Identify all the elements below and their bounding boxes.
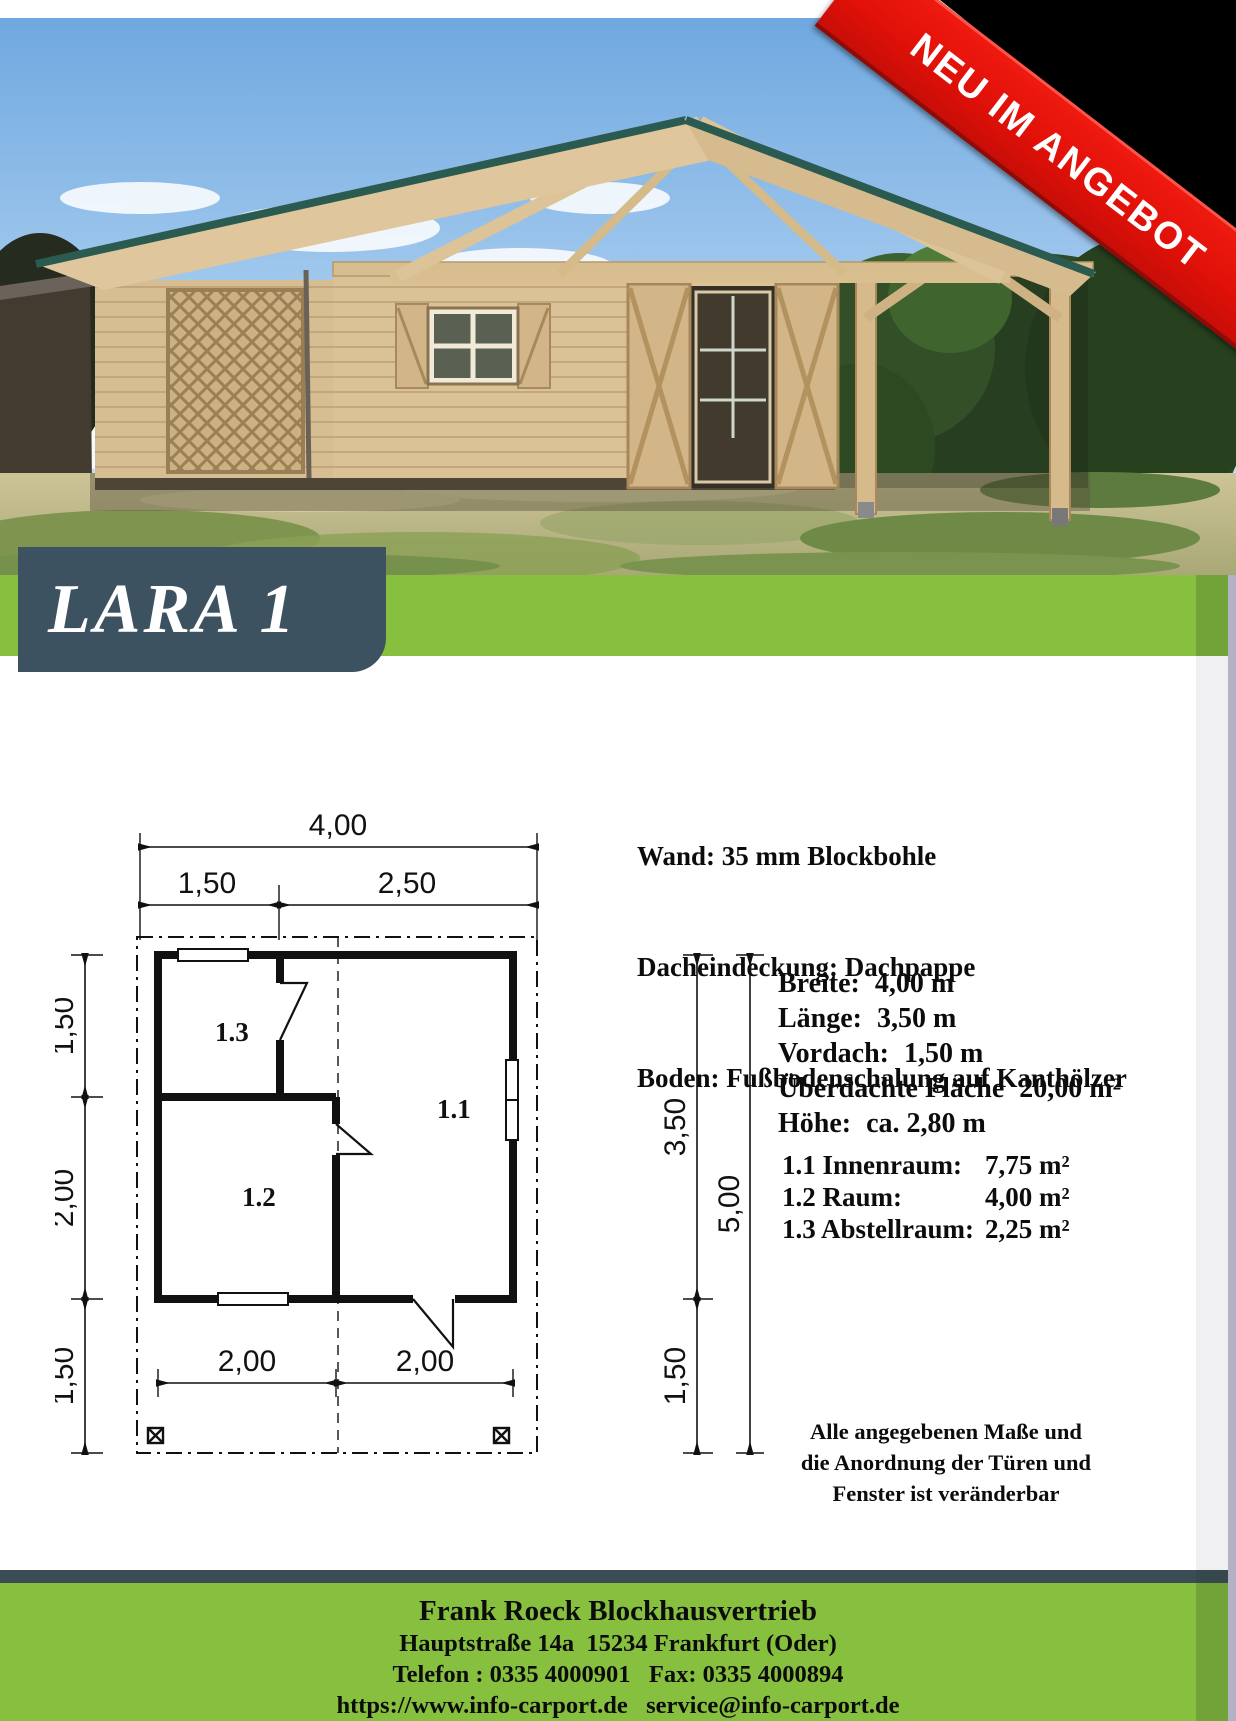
page-edge-tint-band (1196, 575, 1228, 656)
svg-text:4,00: 4,00 (309, 809, 367, 842)
page-title: LARA 1 (18, 570, 297, 650)
svg-text:2,00: 2,00 (218, 1345, 276, 1378)
dimension-row: Überdachte Fläche20,00 m² (778, 1071, 1121, 1106)
page-edge-tint-footer (1196, 1570, 1228, 1721)
plan-windows (178, 949, 518, 1305)
room-value: 4,00 m² (985, 1181, 1070, 1213)
dimension-list: Breite:4,00 m Länge:3,50 m Vordach:1,50 … (778, 966, 1121, 1141)
room-value: 7,75 m² (985, 1149, 1070, 1181)
dimension-row: Länge:3,50 m (778, 1001, 1121, 1036)
dim-bottom: 2,00 2,00 (158, 1345, 513, 1397)
floor-plan-drawing: 4,00 1,50 2,50 1,50 2,00 1,50 (55, 735, 765, 1465)
svg-text:1,50: 1,50 (659, 1347, 692, 1405)
svg-text:1,50: 1,50 (55, 1347, 80, 1405)
downpipe (306, 270, 309, 478)
walls (154, 951, 517, 1303)
svg-text:2,00: 2,00 (55, 1169, 80, 1227)
footer-web-email: https://www.info-carport.de service@info… (0, 1690, 1236, 1721)
dim-right: 3,50 5,00 1,50 (659, 955, 764, 1453)
footer-address: Hauptstraße 14a 15234 Frankfurt (Oder) (0, 1628, 1236, 1659)
page-edge-light-strip (1196, 656, 1228, 1570)
disclaimer-note: Alle angegebenen Maße und die Anordnung … (770, 1416, 1122, 1509)
flyer-page: NEU IM ANGEBOT LARA 1 Wand: 35 mm Blockb… (0, 0, 1236, 1721)
dimension-row: Höhe:ca. 2,80 m (778, 1106, 1121, 1141)
svg-text:1,50: 1,50 (55, 997, 80, 1055)
room-label: 1.1 Innenraum: (782, 1149, 985, 1181)
dim-top: 4,00 1,50 2,50 (140, 809, 537, 940)
left-shed (0, 276, 92, 488)
svg-text:1.2: 1.2 (242, 1182, 276, 1212)
dim-left: 1,50 2,00 1,50 (55, 955, 103, 1453)
room-label: 1.2 Raum: (782, 1181, 985, 1213)
room-area-table: 1.1 Innenraum:7,75 m² 1.2 Raum:4,00 m² 1… (782, 1149, 1070, 1245)
double-door (628, 284, 838, 488)
footer-phone-fax: Telefon : 0335 4000901 Fax: 0335 4000894 (0, 1659, 1236, 1690)
svg-text:3,50: 3,50 (659, 1098, 692, 1156)
svg-text:1,50: 1,50 (178, 867, 236, 900)
room-label: 1.3 Abstellraum: (782, 1213, 985, 1245)
title-box: LARA 1 (18, 547, 386, 672)
footer-company: Frank Roeck Blockhausvertrieb (0, 1595, 1236, 1628)
footer-slate-strip (0, 1570, 1236, 1583)
svg-text:1.1: 1.1 (437, 1094, 471, 1124)
svg-text:1.3: 1.3 (215, 1017, 249, 1047)
door-swings (280, 983, 453, 1347)
svg-text:2,00: 2,00 (396, 1345, 454, 1378)
svg-text:5,00: 5,00 (713, 1175, 746, 1233)
footer: Frank Roeck Blockhausvertrieb Hauptstraß… (0, 1583, 1236, 1721)
room-labels: 1.3 1.2 1.1 (215, 1017, 471, 1212)
window-with-shutters (396, 304, 550, 388)
dimension-row: Vordach:1,50 m (778, 1036, 1121, 1071)
svg-text:2,50: 2,50 (378, 867, 436, 900)
page-edge-lavender-strip (1228, 575, 1236, 1721)
post-markers (148, 1428, 509, 1443)
floor-plan: 4,00 1,50 2,50 1,50 2,00 1,50 (55, 735, 765, 1465)
dimension-row: Breite:4,00 m (778, 966, 1121, 1001)
room-value: 2,25 m² (985, 1213, 1070, 1245)
